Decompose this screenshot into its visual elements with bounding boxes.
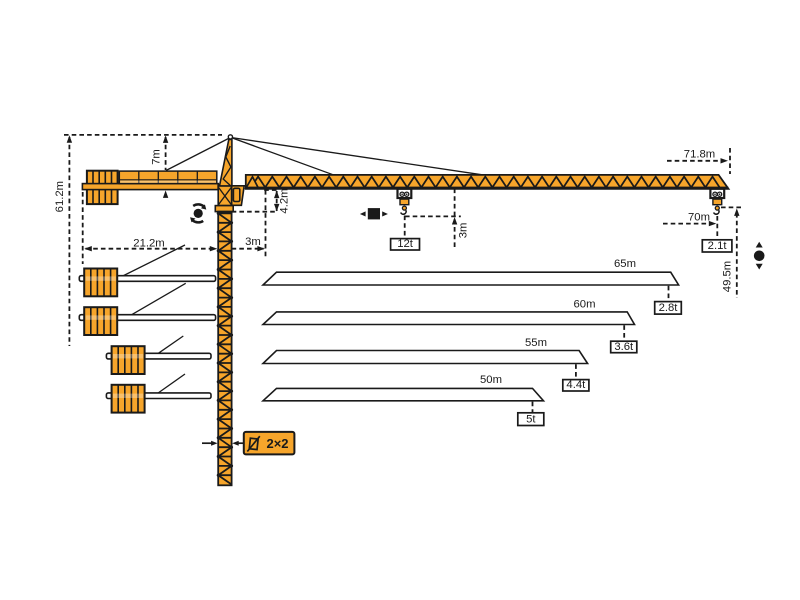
svg-text:50m: 50m [480,374,502,386]
svg-text:70m: 70m [688,211,710,223]
svg-text:21.2m: 21.2m [133,237,164,249]
svg-text:3m: 3m [245,236,261,248]
svg-text:61.2m: 61.2m [54,181,66,212]
svg-text:5t: 5t [526,414,536,426]
svg-text:7m: 7m [150,149,162,165]
svg-text:2×2: 2×2 [266,436,288,451]
svg-text:65m: 65m [614,258,636,270]
svg-text:71.8m: 71.8m [684,148,715,160]
svg-text:55m: 55m [525,337,547,349]
svg-text:49.5m: 49.5m [722,261,734,292]
svg-text:60m: 60m [574,298,596,310]
svg-text:3m: 3m [458,223,470,239]
svg-text:2.1t: 2.1t [708,240,728,252]
svg-text:4.2m: 4.2m [279,188,291,213]
svg-text:12t: 12t [397,238,414,250]
svg-text:2.8t: 2.8t [659,302,679,314]
svg-text:4.4t: 4.4t [566,379,586,391]
svg-text:3.6t: 3.6t [614,341,634,353]
